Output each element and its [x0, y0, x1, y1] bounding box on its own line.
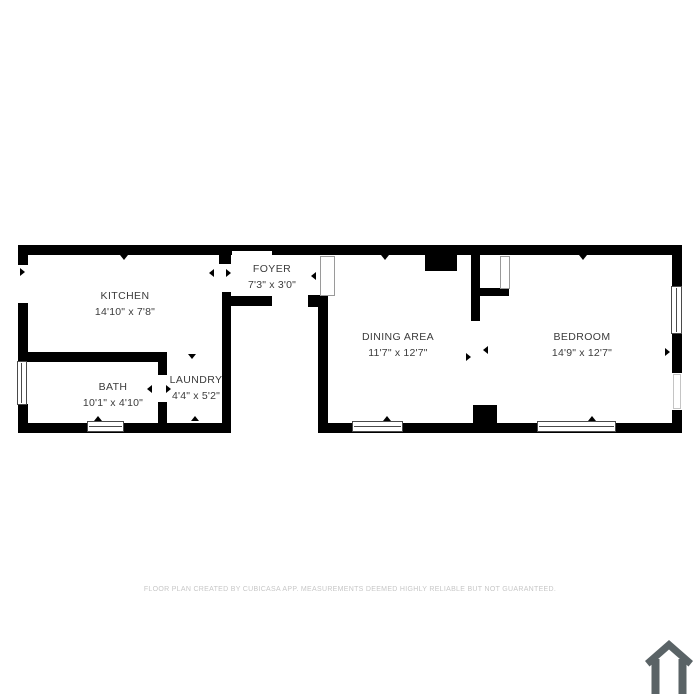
chimney-block: [425, 252, 457, 271]
measure-arrow-icon: [191, 416, 199, 421]
measure-arrow-icon: [665, 348, 670, 356]
wall: [672, 334, 682, 373]
entry-notch: [232, 251, 272, 255]
disclaimer-text: FLOOR PLAN CREATED BY CUBICASA APP. MEAS…: [0, 586, 700, 593]
room-dimensions: 11'7" x 12'7": [362, 345, 434, 361]
wall: [18, 423, 231, 433]
wall: [471, 252, 480, 321]
measure-arrow-icon: [120, 255, 128, 260]
room-name: DINING AREA: [362, 329, 434, 345]
wall: [158, 402, 167, 423]
measure-arrow-icon: [381, 255, 389, 260]
room-label-foyer: FOYER 7'3" x 3'0": [248, 261, 296, 293]
room-name: KITCHEN: [95, 288, 155, 304]
measure-arrow-icon: [579, 255, 587, 260]
room-label-bath: BATH 10'1" x 4'10": [83, 379, 143, 411]
window: [671, 286, 682, 334]
measure-arrow-icon: [226, 269, 231, 277]
wall: [18, 245, 231, 255]
wall: [318, 295, 328, 433]
wall: [672, 245, 682, 286]
room-dimensions: 7'3" x 3'0": [248, 277, 296, 293]
room-dimensions: 4'4" x 5'2": [170, 388, 223, 404]
floor-plan: KITCHEN 14'10" x 7'8" FOYER 7'3" x 3'0" …: [0, 0, 700, 700]
measure-arrow-icon: [188, 354, 196, 359]
window: [352, 421, 403, 432]
measure-arrow-icon: [588, 416, 596, 421]
room-name: LAUNDRY: [170, 372, 223, 388]
room-label-laundry: LAUNDRY 4'4" x 5'2": [170, 372, 223, 404]
room-name: BEDROOM: [552, 329, 612, 345]
room-name: BATH: [83, 379, 143, 395]
wall: [473, 405, 497, 423]
room-name: FOYER: [248, 261, 296, 277]
room-dimensions: 14'9" x 12'7": [552, 345, 612, 361]
cubicasa-house-icon: [644, 639, 694, 694]
measure-arrow-icon: [209, 269, 214, 277]
room-label-kitchen: KITCHEN 14'10" x 7'8": [95, 288, 155, 320]
wall: [18, 255, 28, 265]
wall: [231, 296, 272, 306]
room-label-bedroom: BEDROOM 14'9" x 12'7": [552, 329, 612, 361]
measure-arrow-icon: [311, 272, 316, 280]
wall: [672, 410, 682, 433]
wall: [18, 352, 167, 362]
wall: [471, 288, 509, 296]
window: [87, 421, 124, 432]
wall: [222, 292, 231, 433]
measure-arrow-icon: [94, 416, 102, 421]
wall: [219, 255, 231, 264]
room-label-dining: DINING AREA 11'7" x 12'7": [362, 329, 434, 361]
room-dimensions: 14'10" x 7'8": [95, 304, 155, 320]
door-swing: [500, 256, 510, 289]
window: [537, 421, 616, 432]
door-swing: [320, 256, 335, 296]
window: [17, 361, 27, 405]
measure-arrow-icon: [466, 353, 471, 361]
measure-arrow-icon: [483, 346, 488, 354]
measure-arrow-icon: [20, 268, 25, 276]
room-dimensions: 10'1" x 4'10": [83, 395, 143, 411]
measure-arrow-icon: [383, 416, 391, 421]
measure-arrow-icon: [147, 385, 152, 393]
door-swing: [673, 374, 681, 409]
wall: [158, 362, 167, 375]
floor-plan-page: KITCHEN 14'10" x 7'8" FOYER 7'3" x 3'0" …: [0, 0, 700, 700]
